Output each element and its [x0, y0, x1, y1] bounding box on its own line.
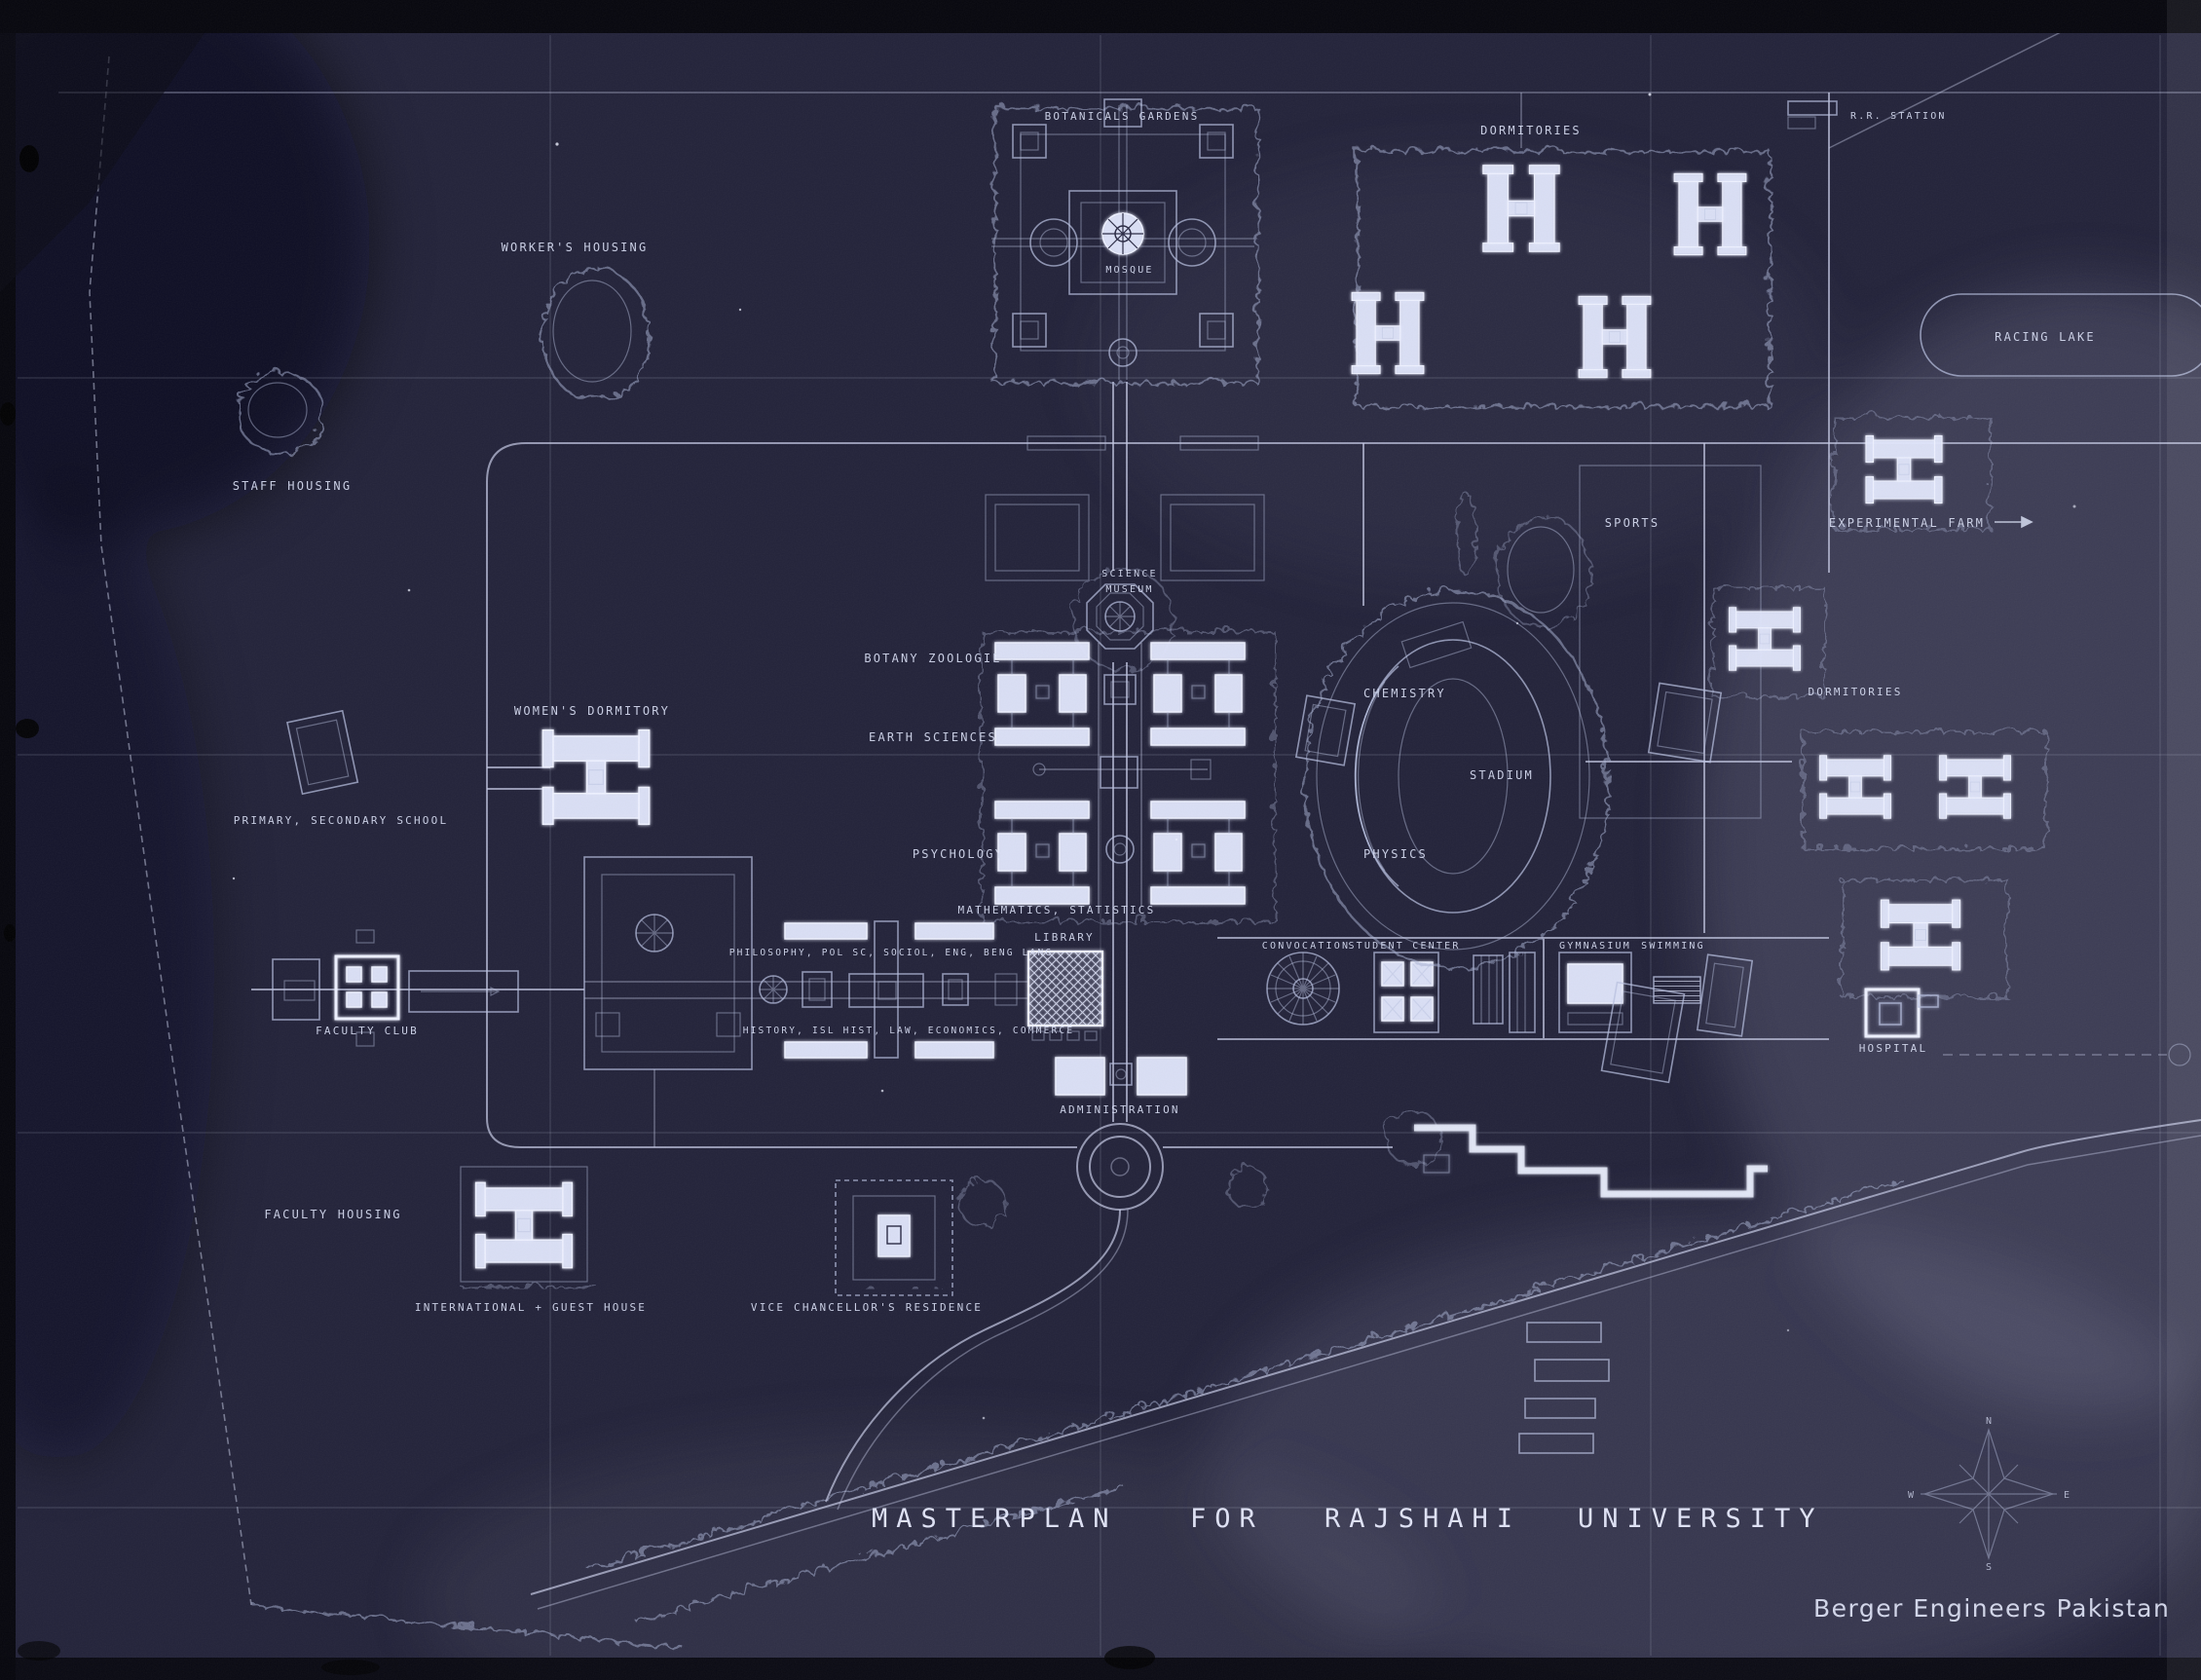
photo-artifacts [0, 0, 2201, 1680]
masterplan-drawing: N E S W BOTANICALS GARDENS MOSQUE DORMIT… [0, 0, 2201, 1680]
blueprint-photo: N E S W BOTANICALS GARDENS MOSQUE DORMIT… [0, 0, 2201, 1680]
